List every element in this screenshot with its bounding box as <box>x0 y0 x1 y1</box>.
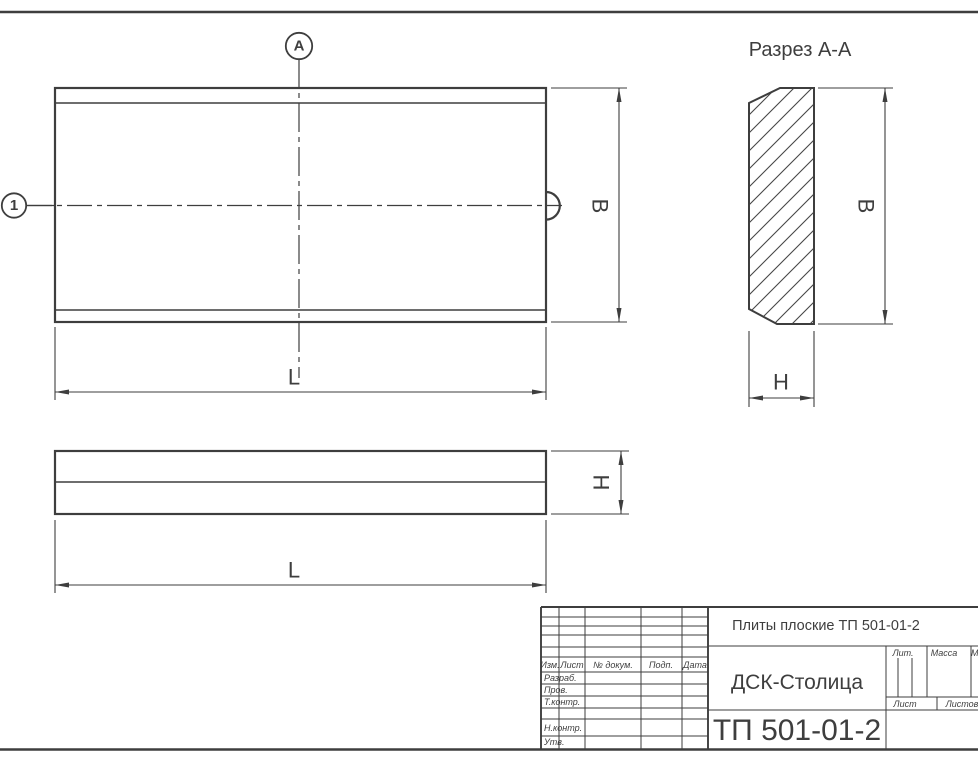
dim-label-plan-width: B <box>588 199 613 214</box>
prop-list: Лист <box>892 699 917 709</box>
th-podp: Подп. <box>649 660 673 670</box>
dim-plan-length: L <box>55 327 546 400</box>
position-marker-number: 1 <box>10 197 18 214</box>
role-utv: Утв. <box>543 737 564 747</box>
drawing-sheet: А 1 B L Разрез А-А B <box>0 0 978 762</box>
dim-label-section-width: B <box>854 199 879 214</box>
dim-plan-width: B <box>551 88 627 322</box>
dim-label-section-height: H <box>773 370 789 395</box>
role-prov: Пров. <box>544 685 568 695</box>
prop-masshtab: Масштаб <box>971 648 978 658</box>
sheet-frame <box>0 12 978 750</box>
title-block: Изм. Лист № докум. Подп. Дата Разраб. Пр… <box>540 607 978 749</box>
dim-section-height: H <box>749 331 814 407</box>
position-marker: 1 <box>2 193 55 217</box>
prop-listov: Листов <box>945 699 978 709</box>
section-view: Разрез А-А B H <box>749 39 893 407</box>
th-data: Дата <box>682 660 707 670</box>
section-title: Разрез А-А <box>749 39 852 61</box>
prop-lit: Лит. <box>891 648 913 658</box>
th-list: Лист <box>559 660 584 670</box>
dim-label-plan-length: L <box>288 365 300 390</box>
side-view: H L <box>55 451 629 593</box>
dim-side-length: L <box>55 520 546 593</box>
dim-section-width: B <box>818 88 893 324</box>
dim-label-side-height: H <box>589 475 614 491</box>
centerlines <box>27 59 562 378</box>
role-t-kontr: Т.контр. <box>544 697 580 707</box>
role-razrab: Разраб. <box>544 673 577 683</box>
document-number: ТП 501-01-2 <box>713 714 881 747</box>
dim-side-height: H <box>551 451 629 514</box>
organization-name: ДСК-Столица <box>731 671 863 694</box>
section-cut-marker: А <box>286 33 312 59</box>
prop-massa: Масса <box>931 648 958 658</box>
document-title: Плиты плоские ТП 501-01-2 <box>732 618 920 634</box>
section-outline-hatched <box>749 88 814 324</box>
dim-label-side-length: L <box>288 558 300 583</box>
drawing-canvas: А 1 B L Разрез А-А B <box>0 0 978 762</box>
role-n-kontr: Н.контр. <box>544 723 582 733</box>
th-izm: Изм. <box>540 660 559 670</box>
th-num-dokum: № докум. <box>593 660 633 670</box>
section-marker-letter: А <box>294 38 305 55</box>
